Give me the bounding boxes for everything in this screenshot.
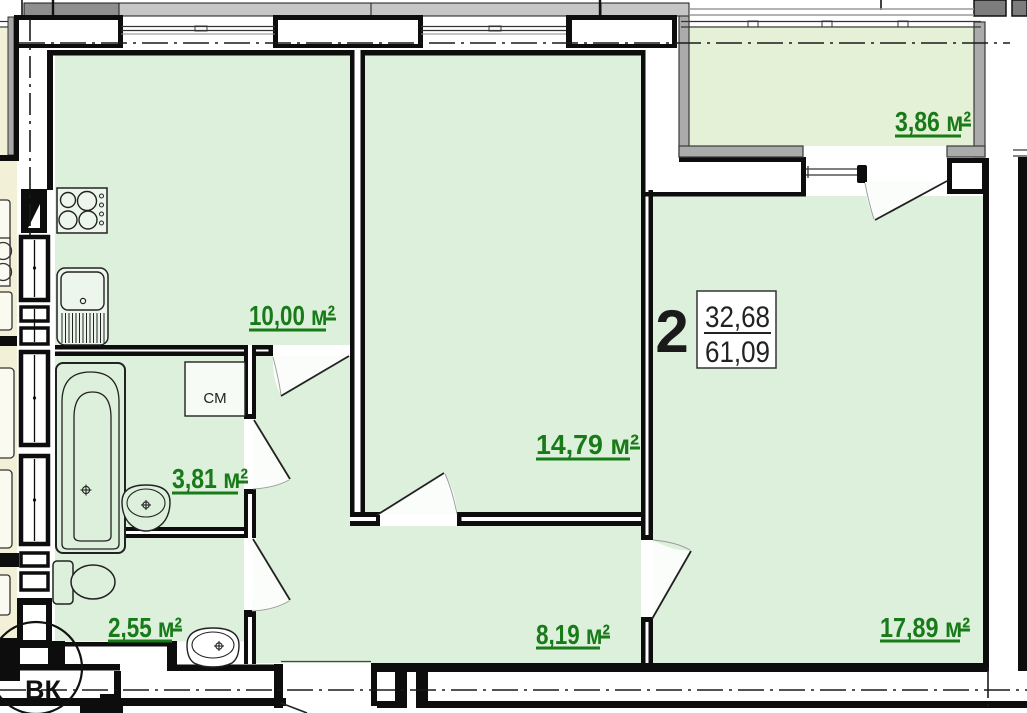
svg-text:10,00 м²: 10,00 м² xyxy=(249,300,335,331)
svg-text:32,68: 32,68 xyxy=(705,301,770,334)
svg-text:61,09: 61,09 xyxy=(705,336,770,369)
svg-text:3,86 м²: 3,86 м² xyxy=(895,106,971,137)
svg-text:2,55 м²: 2,55 м² xyxy=(108,612,182,643)
svg-text:14,79 м²: 14,79 м² xyxy=(536,429,639,460)
svg-text:СМ: СМ xyxy=(203,390,226,407)
svg-text:8,19 м²: 8,19 м² xyxy=(536,619,610,650)
svg-text:ВК: ВК xyxy=(25,675,61,705)
svg-text:17,89 м²: 17,89 м² xyxy=(880,612,970,643)
svg-text:2: 2 xyxy=(655,298,688,365)
svg-text:3,81 м²: 3,81 м² xyxy=(172,463,248,494)
